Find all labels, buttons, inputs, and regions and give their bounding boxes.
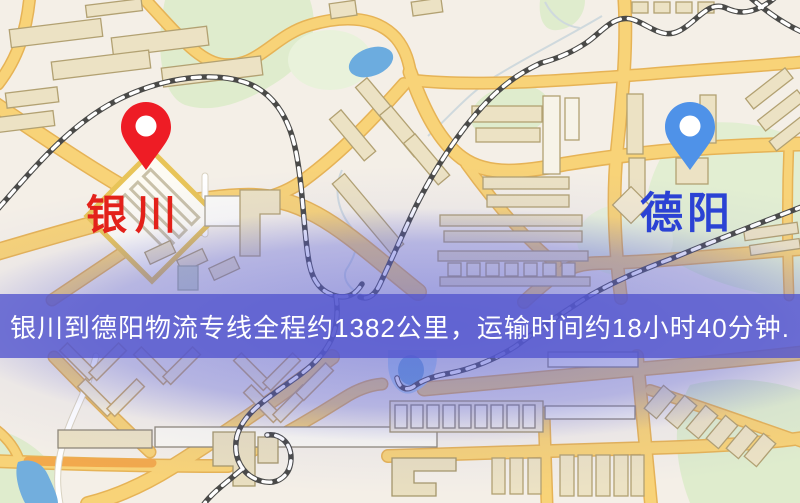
map-canvas bbox=[0, 0, 800, 503]
route-info-banner: 银川到德阳物流专线全程约1382公里，运输时间约18小时40分钟. bbox=[0, 294, 800, 358]
destination-city-label: 德阳 bbox=[640, 179, 734, 241]
origin-city-label: 银川 bbox=[86, 181, 184, 241]
destination-pin-icon[interactable] bbox=[663, 101, 717, 171]
orange-road bbox=[28, 461, 152, 463]
origin-pin-icon[interactable] bbox=[119, 101, 173, 171]
map-screenshot: 银川 德阳 银川到德阳物流专线全程约1382公里，运输时间约18小时40分钟. bbox=[0, 0, 800, 503]
route-info-text: 银川到德阳物流专线全程约1382公里，运输时间约18小时40分钟. bbox=[10, 308, 790, 345]
